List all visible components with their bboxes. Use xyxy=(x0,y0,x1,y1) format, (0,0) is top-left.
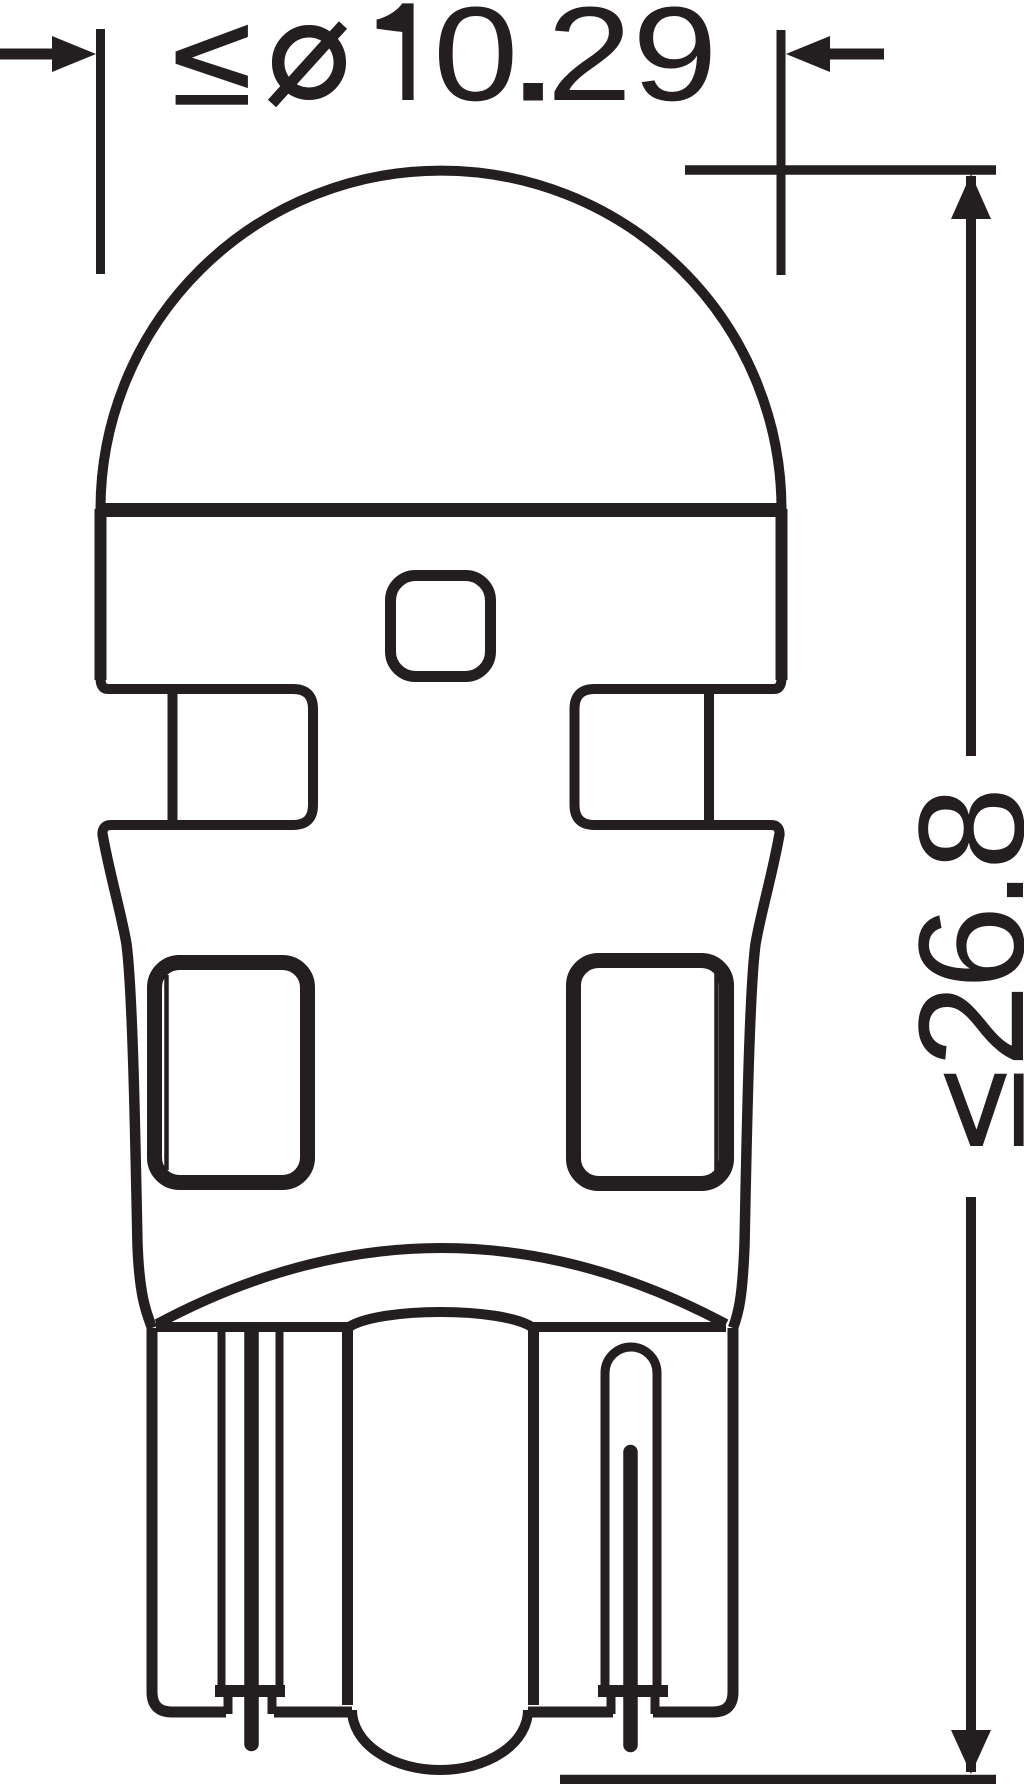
svg-text:29: 29 xyxy=(547,0,718,129)
svg-text:0: 0 xyxy=(433,0,518,129)
svg-text:26.8: 26.8 xyxy=(887,787,1024,1068)
